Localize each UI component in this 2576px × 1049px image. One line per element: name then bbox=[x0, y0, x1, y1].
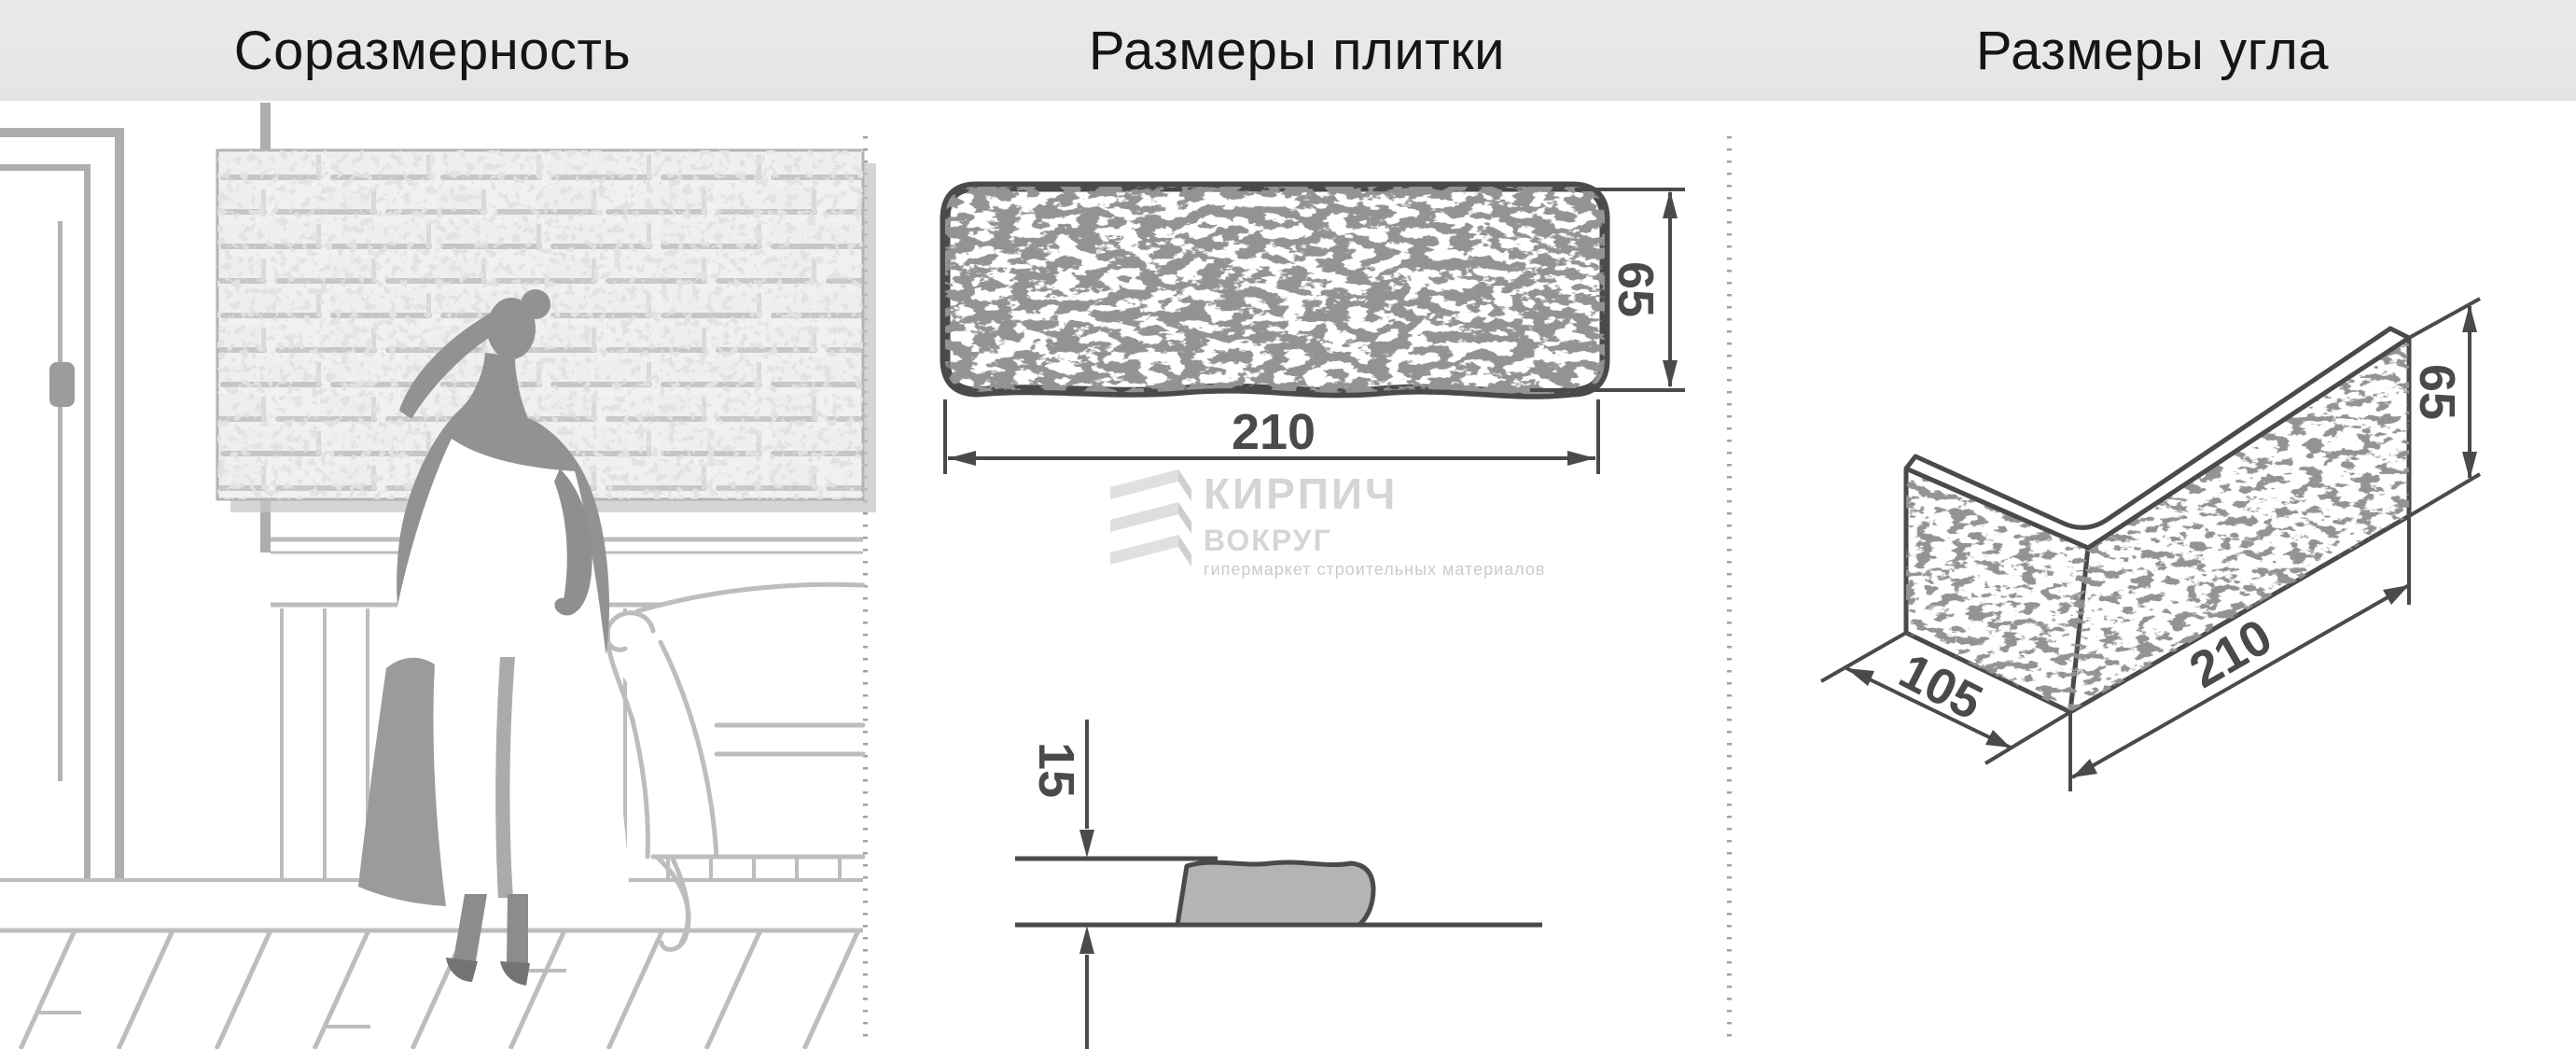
tile-front-view: 210 65 bbox=[945, 187, 1685, 474]
door-sketch bbox=[0, 128, 124, 880]
tile-thickness-label: 15 bbox=[1028, 742, 1084, 798]
corner-height-dimension: 65 bbox=[2409, 299, 2480, 516]
tile-height-label: 65 bbox=[1608, 261, 1664, 317]
floor bbox=[0, 880, 863, 1049]
brand-name-top: КИРПИЧ bbox=[1204, 469, 1398, 518]
watermark-logo: КИРПИЧ ВОКРУГ гипермаркет строительных м… bbox=[1110, 469, 1545, 579]
tile-length-dimension: 210 bbox=[945, 399, 1598, 474]
corner-height-label: 65 bbox=[2409, 364, 2465, 420]
tile-length-label: 210 bbox=[1232, 404, 1316, 460]
proportionality-scene bbox=[0, 103, 876, 1049]
corner-element-view: 105 210 65 bbox=[1821, 299, 2480, 791]
diagram-scene: 210 65 КИРПИЧ ВОКРУГ гипермаркет строите… bbox=[0, 0, 2576, 1049]
tile-thickness-dimension: 15 bbox=[1028, 720, 1094, 1049]
brand-mark-icon bbox=[1110, 469, 1191, 566]
sofa-sketch bbox=[606, 584, 863, 949]
brand-tagline: гипермаркет строительных материалов bbox=[1204, 560, 1545, 579]
tile-side-view: 15 bbox=[1015, 720, 1542, 1049]
brand-name-bottom: ВОКРУГ bbox=[1204, 524, 1332, 557]
